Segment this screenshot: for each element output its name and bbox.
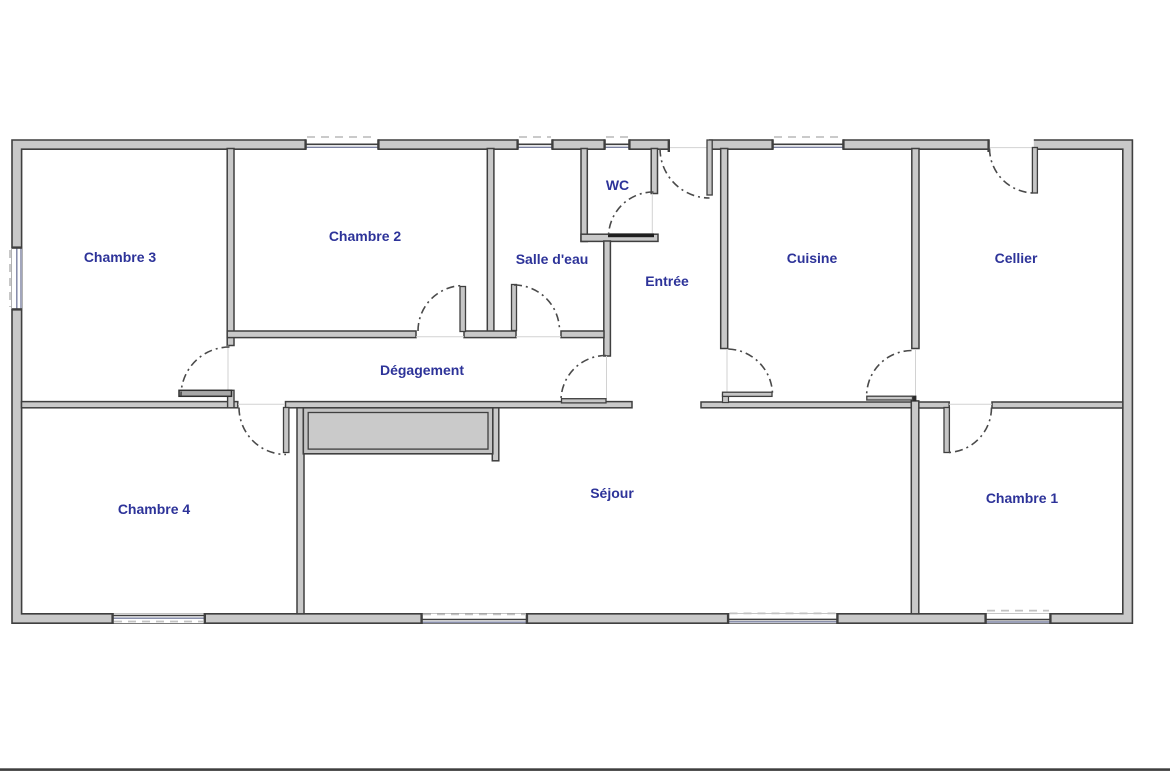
svg-text:Entrée: Entrée	[645, 273, 689, 289]
svg-text:Séjour: Séjour	[590, 485, 634, 501]
svg-text:Dégagement: Dégagement	[380, 362, 464, 378]
svg-text:Cuisine: Cuisine	[787, 250, 838, 266]
svg-text:Chambre 4: Chambre 4	[118, 501, 191, 517]
svg-text:Chambre 3: Chambre 3	[84, 249, 157, 265]
svg-text:Chambre 1: Chambre 1	[986, 490, 1059, 506]
svg-text:Chambre 2: Chambre 2	[329, 228, 402, 244]
svg-text:WC: WC	[606, 177, 629, 193]
svg-text:Cellier: Cellier	[995, 250, 1038, 266]
svg-text:Salle d'eau: Salle d'eau	[516, 251, 589, 267]
